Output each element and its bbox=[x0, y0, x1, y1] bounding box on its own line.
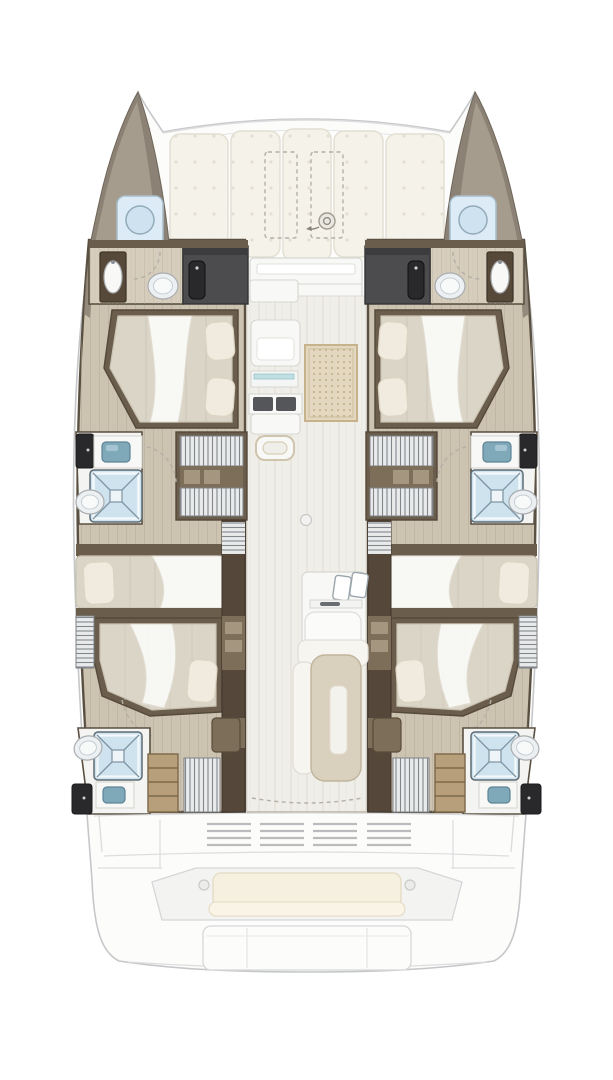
table-tray bbox=[330, 686, 347, 754]
storage-shelf bbox=[180, 466, 243, 488]
catamaran-floorplan: Catamaran yacht floor plan, top-down vie… bbox=[0, 0, 613, 1080]
headboard-wall bbox=[76, 544, 232, 556]
toilet bbox=[148, 273, 178, 299]
louvered-step bbox=[180, 436, 243, 466]
engine-locker bbox=[212, 718, 240, 752]
porthole-icon bbox=[126, 206, 154, 234]
swim-platform bbox=[203, 926, 411, 970]
grab-ring bbox=[199, 880, 209, 890]
inboard-locker-column bbox=[222, 520, 245, 812]
washbasin bbox=[100, 252, 126, 302]
washbasin bbox=[96, 782, 134, 808]
louvered-hatch bbox=[184, 758, 220, 812]
sunpad-cushion bbox=[170, 134, 228, 254]
counter-dark-insets bbox=[249, 394, 302, 414]
bathroom-door bbox=[76, 434, 94, 468]
shower bbox=[94, 732, 142, 780]
floorplan-stage: Catamaran yacht floor plan, top-down vie… bbox=[0, 0, 613, 1080]
companionway-steps bbox=[176, 432, 247, 520]
pillow bbox=[205, 377, 236, 417]
faucet bbox=[310, 600, 362, 608]
dinette bbox=[293, 640, 368, 781]
pillow bbox=[186, 659, 218, 703]
forward-bulkhead bbox=[89, 240, 248, 248]
hatch-handle bbox=[256, 436, 294, 460]
sunpad-cushion bbox=[283, 129, 331, 261]
washbasin bbox=[94, 436, 142, 468]
ceiling-light-dot bbox=[301, 515, 312, 526]
louvered-locker bbox=[76, 616, 94, 668]
sunpad-cushion bbox=[386, 134, 444, 254]
mid-cabin bbox=[76, 544, 232, 618]
sink-basin bbox=[349, 572, 368, 598]
pillow bbox=[83, 561, 115, 605]
pillow bbox=[205, 321, 236, 361]
toilet bbox=[76, 490, 104, 514]
forward-bathroom bbox=[89, 247, 183, 304]
wood-steps bbox=[148, 754, 178, 812]
aft-bench bbox=[152, 868, 462, 920]
duvet bbox=[152, 556, 222, 608]
footboard-wall bbox=[76, 608, 232, 618]
louvered-step bbox=[180, 488, 243, 516]
sink-basin bbox=[332, 575, 351, 601]
saloon-rug bbox=[305, 345, 357, 421]
aft-bathroom bbox=[72, 728, 150, 814]
forward-wardrobe bbox=[183, 246, 248, 304]
grab-ring bbox=[405, 880, 415, 890]
bathroom-door bbox=[72, 784, 92, 814]
cooktop bbox=[251, 371, 298, 387]
